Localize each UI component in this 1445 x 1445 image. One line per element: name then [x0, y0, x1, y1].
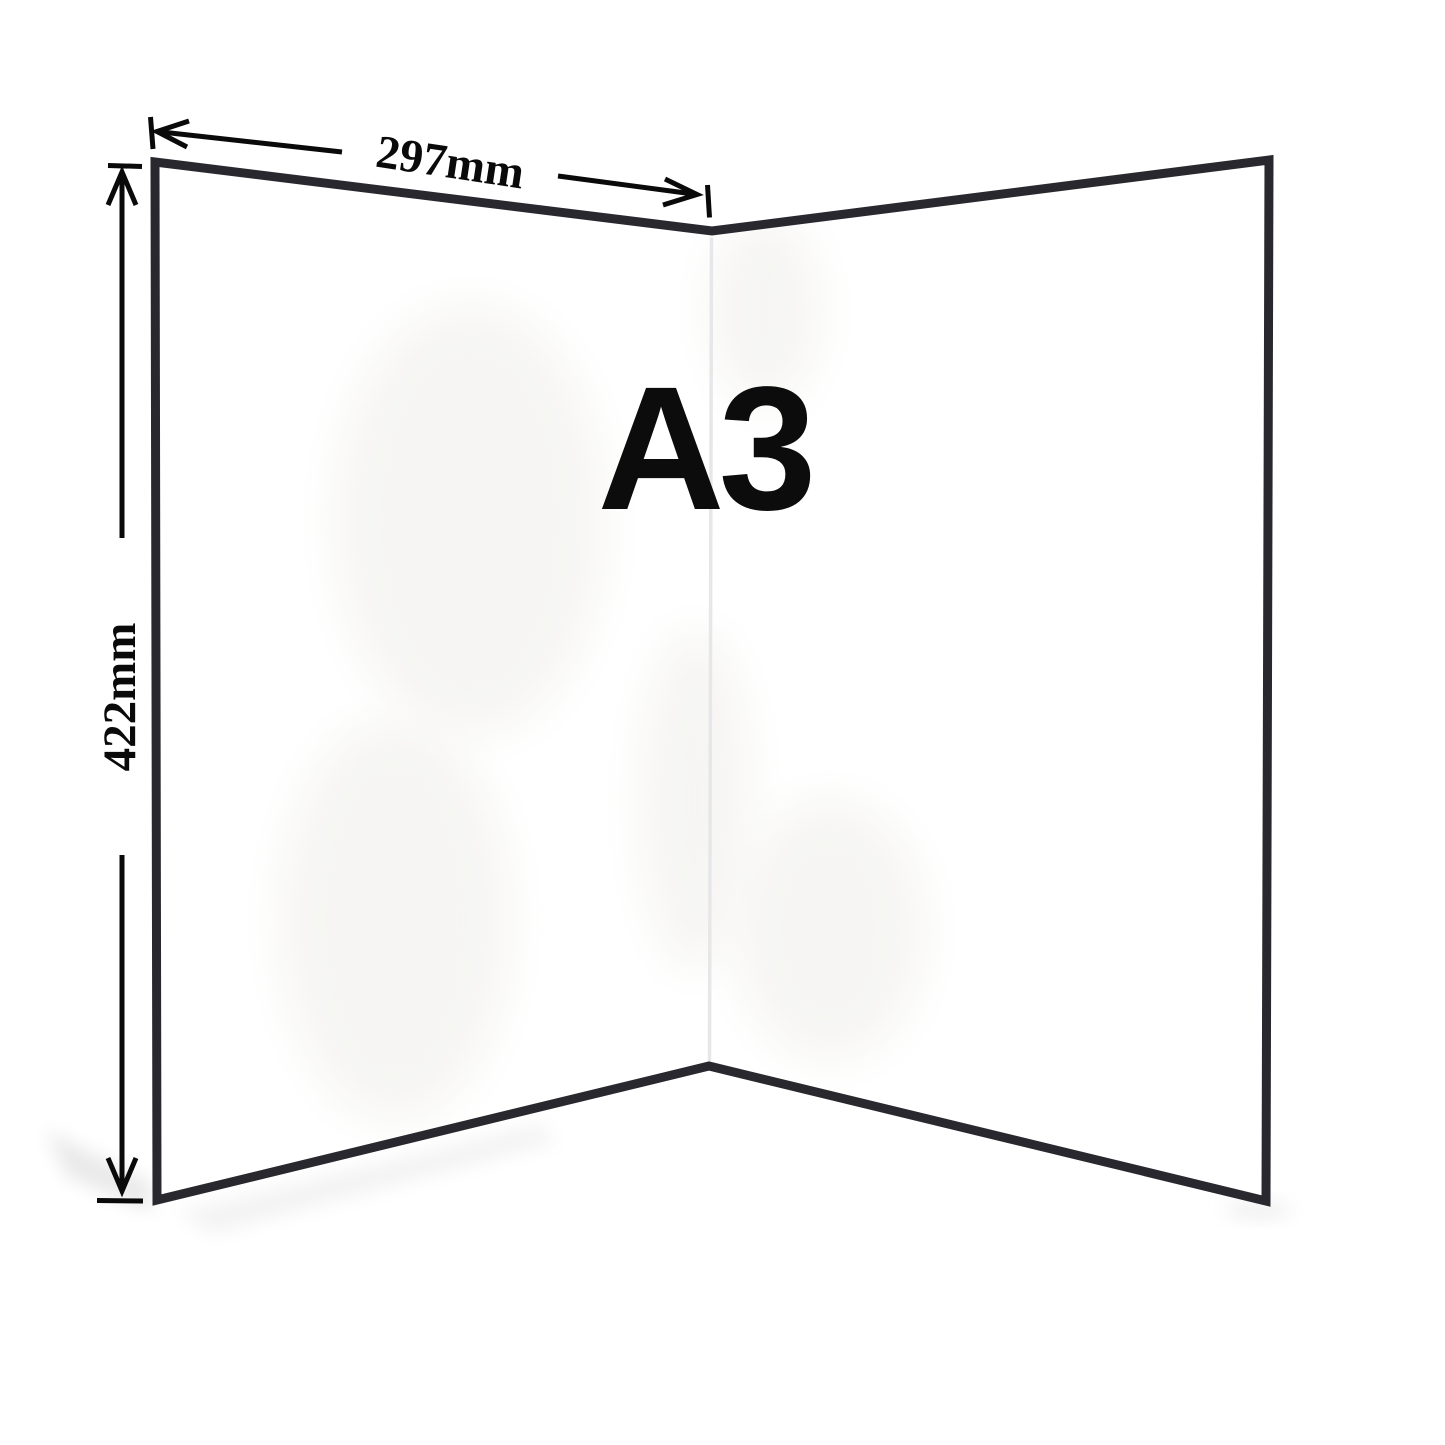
product-image: A3 297mm 422mm [0, 0, 1445, 1445]
height-tick-bottom [97, 1201, 143, 1202]
size-label: A3 [598, 351, 811, 547]
glare-left-panel-upper [335, 305, 605, 735]
width-tick-right [708, 185, 710, 218]
shadow-right-corner [1224, 1201, 1292, 1219]
glare-right-panel [735, 800, 925, 1060]
dimension-diagram: A3 297mm 422mm [0, 0, 1445, 1445]
glare-left-panel-lower [280, 720, 510, 1120]
height-tick-top [108, 166, 142, 167]
width-line-left [157, 132, 342, 153]
height-dimension: 422mm [94, 166, 146, 1202]
width-tick-left [151, 117, 154, 149]
height-dimension-label: 422mm [94, 623, 146, 772]
glare-near-fold [640, 630, 750, 970]
